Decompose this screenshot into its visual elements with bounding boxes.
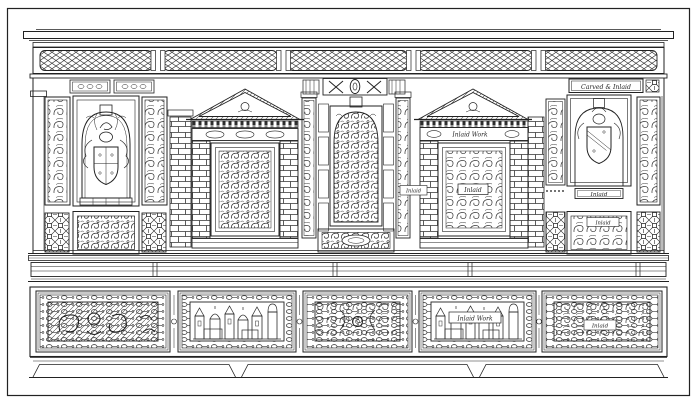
fretwork-panel — [45, 213, 69, 252]
arabesque-pilaster — [48, 100, 67, 202]
bottom-panel-towers — [178, 291, 296, 352]
bottom-panel-foliage — [303, 291, 412, 352]
sideboard-engraving: Carved & Inlaid — [0, 0, 697, 403]
carved-arch-panel — [334, 112, 378, 222]
bottom-panel-carved — [36, 291, 170, 352]
label-bottom-inlaid-work: Inlaid Work — [456, 316, 493, 323]
fretwork-panel — [637, 212, 660, 252]
carved-panel — [78, 216, 135, 250]
frieze-lattice-panel — [40, 51, 152, 71]
arabesque-pilaster — [640, 100, 657, 202]
rusticated-strip — [170, 117, 191, 247]
rusticated-jamb — [192, 141, 210, 238]
arabesque-pilaster — [145, 100, 164, 202]
label-inlaid-work-frieze: Inlaid Work — [451, 132, 488, 139]
frieze-lattice-panel — [543, 51, 657, 71]
label-bottom-inlaid: Inlaid — [591, 324, 609, 330]
label-inlaid-panel: Inlaid — [463, 187, 482, 194]
rusticated-jamb — [510, 141, 528, 238]
rusticated-strip — [528, 117, 544, 247]
engraving-plate: Carved & Inlaid — [0, 0, 697, 403]
bottom-tier — [30, 287, 667, 357]
bottom-panel-inlaid — [542, 291, 662, 352]
fretwork-panel — [142, 213, 166, 252]
label-carved-inlaid: Carved & Inlaid — [581, 84, 631, 91]
frieze-lattice-panel — [164, 51, 277, 71]
frieze-lattice-panel — [288, 51, 407, 71]
label-inlaid-lower: Inlaid — [594, 221, 611, 227]
label-inlaid-jamb: Inlaid — [405, 189, 422, 195]
rusticated-jamb — [280, 141, 298, 238]
fretwork-panel — [546, 212, 565, 252]
frieze-lattice-panel — [419, 51, 532, 71]
arabesque-pilaster — [398, 101, 408, 236]
carved-strapwork-panel — [219, 151, 271, 228]
arabesque-pilaster — [304, 101, 314, 236]
arabesque-pilaster — [549, 102, 563, 183]
label-inlaid-bar: Inlaid — [590, 192, 608, 198]
